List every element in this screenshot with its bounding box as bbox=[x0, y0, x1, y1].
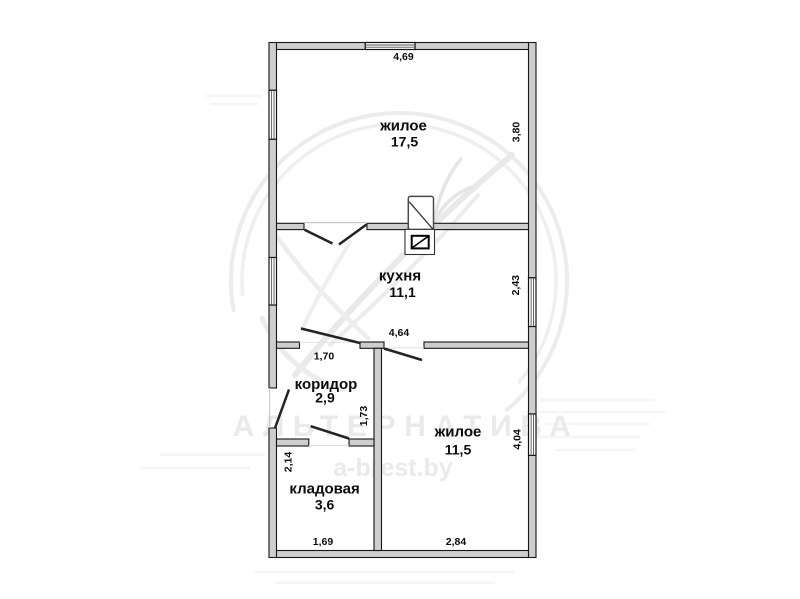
svg-text:1,70: 1,70 bbox=[314, 351, 335, 363]
svg-text:3,6: 3,6 bbox=[315, 497, 335, 513]
svg-text:4,04: 4,04 bbox=[512, 429, 524, 450]
svg-text:2,43: 2,43 bbox=[510, 275, 522, 296]
svg-text:2,84: 2,84 bbox=[446, 536, 467, 548]
svg-text:АЛЬТЕРНАТИВА: АЛЬТЕРНАТИВА bbox=[233, 410, 580, 443]
svg-text:жилое: жилое bbox=[434, 424, 482, 441]
svg-text:11,1: 11,1 bbox=[389, 284, 416, 300]
svg-text:4,64: 4,64 bbox=[389, 327, 410, 339]
svg-text:1,73: 1,73 bbox=[358, 406, 370, 427]
svg-text:2,14: 2,14 bbox=[283, 452, 295, 473]
svg-text:17,5: 17,5 bbox=[391, 133, 418, 149]
svg-text:кладовая: кладовая bbox=[289, 481, 359, 498]
svg-text:1,69: 1,69 bbox=[313, 536, 334, 548]
svg-text:a-brest.by: a-brest.by bbox=[333, 454, 453, 482]
svg-text:кухня: кухня bbox=[379, 268, 421, 285]
svg-text:4,69: 4,69 bbox=[393, 51, 414, 63]
svg-text:2,9: 2,9 bbox=[315, 389, 335, 405]
svg-text:3,80: 3,80 bbox=[510, 122, 522, 143]
svg-text:11,5: 11,5 bbox=[445, 442, 472, 458]
svg-text:жилое: жилое bbox=[379, 117, 427, 134]
